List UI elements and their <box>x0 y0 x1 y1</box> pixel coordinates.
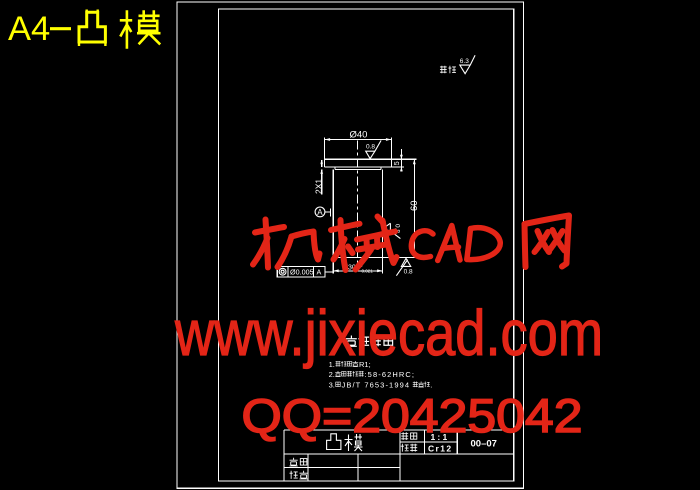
svg-text:A: A <box>317 208 323 217</box>
svg-text:60: 60 <box>409 200 420 211</box>
svg-text:2X1: 2X1 <box>314 179 324 194</box>
svg-text:Cr12: Cr12 <box>428 444 453 454</box>
svg-text:A4: A4 <box>8 10 50 48</box>
svg-text:2.: 2. <box>329 370 335 379</box>
svg-text:0.8: 0.8 <box>404 269 413 276</box>
svg-text:5: 5 <box>394 161 401 165</box>
svg-text:0.8: 0.8 <box>366 143 375 150</box>
svg-text::58-62HRC;: :58-62HRC; <box>365 370 416 379</box>
svg-text:Ø0.005: Ø0.005 <box>290 268 314 277</box>
svg-text:Ø40: Ø40 <box>350 130 368 141</box>
svg-text:www.jixiecad.com: www.jixiecad.com <box>174 297 603 369</box>
svg-text:6.3: 6.3 <box>460 58 469 65</box>
svg-text:-0.021: -0.021 <box>360 268 373 273</box>
svg-text:A: A <box>317 268 322 277</box>
svg-text:QQ=20425042: QQ=20425042 <box>242 389 583 442</box>
